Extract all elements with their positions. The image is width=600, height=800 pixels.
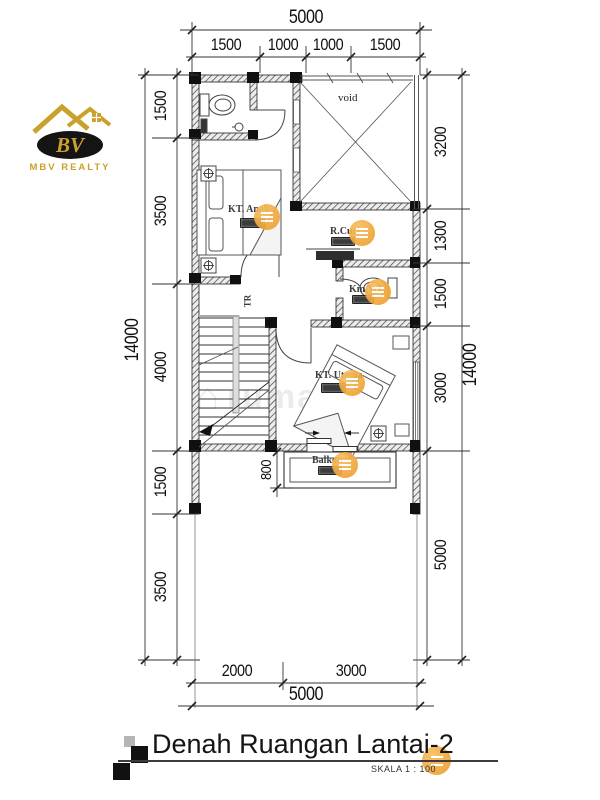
- floorplan-drawing: [0, 0, 600, 800]
- dim-right-seg-3: 3000: [433, 363, 449, 414]
- dim-left-seg-4: 3500: [153, 562, 169, 613]
- dim-left-seg-2: 4000: [153, 342, 169, 393]
- drain-symbol: [201, 166, 216, 181]
- laundry-counter: [306, 249, 360, 260]
- nightstands: [393, 336, 409, 436]
- stairs-label: TR: [242, 295, 252, 308]
- dim-top-seg-1500b: 1500: [364, 36, 407, 54]
- dim-right-seg-4: 5000: [433, 530, 449, 581]
- toilet-top-bathroom: [200, 94, 243, 133]
- dim-top-seg-1500a: 1500: [205, 36, 248, 54]
- sink: [235, 123, 243, 131]
- marker-pin-icon: [339, 370, 365, 396]
- dim-bottom-overall: 5000: [281, 685, 332, 705]
- dim-right-seg-1: 1300: [433, 211, 449, 262]
- title-rule: [118, 760, 498, 762]
- dim-left-seg-1: 3500: [153, 186, 169, 237]
- marker-pin-icon: [349, 220, 375, 246]
- void-area: [300, 73, 419, 209]
- dim-right-seg-0: 3200: [433, 117, 449, 168]
- dim-top-overall: 5000: [281, 8, 332, 28]
- dim-top-seg-1000b: 1000: [307, 36, 350, 54]
- marker-pin-icon: [254, 204, 280, 230]
- dim-right-seg-2: 1500: [433, 269, 449, 320]
- pin-bars-icon: [372, 287, 384, 297]
- pin-bars-icon: [339, 460, 351, 470]
- pin-bars-icon: [346, 378, 358, 388]
- pin-bars-icon: [356, 228, 368, 238]
- page-title: Denah Ruangan Lantai-2: [152, 729, 448, 761]
- dim-top-seg-1000a: 1000: [262, 36, 305, 54]
- floorplan-page: BV MBV REALTY ⌂ rumande: [0, 0, 600, 800]
- dim-right-overall: 14000: [463, 335, 479, 395]
- dim-balcony-800: 800: [258, 453, 274, 487]
- dim-left-seg-3: 1500: [153, 457, 169, 508]
- drain-symbol: [371, 426, 386, 441]
- pin-bars-icon: [261, 212, 273, 222]
- drain-symbol: [201, 258, 216, 273]
- dim-left-overall: 14000: [125, 310, 141, 370]
- dim-bottom-seg-1: 3000: [330, 662, 373, 680]
- dim-bottom-seg-0: 2000: [216, 662, 259, 680]
- room-label-void: void: [338, 92, 358, 104]
- marker-pin-icon: [365, 279, 391, 305]
- title-checker-logo: [113, 763, 130, 780]
- dim-left-seg-0: 1500: [153, 81, 169, 132]
- scale-note: SKALA 1 : 100: [371, 764, 431, 774]
- staircase: [199, 316, 269, 447]
- marker-pin-icon: [332, 452, 358, 478]
